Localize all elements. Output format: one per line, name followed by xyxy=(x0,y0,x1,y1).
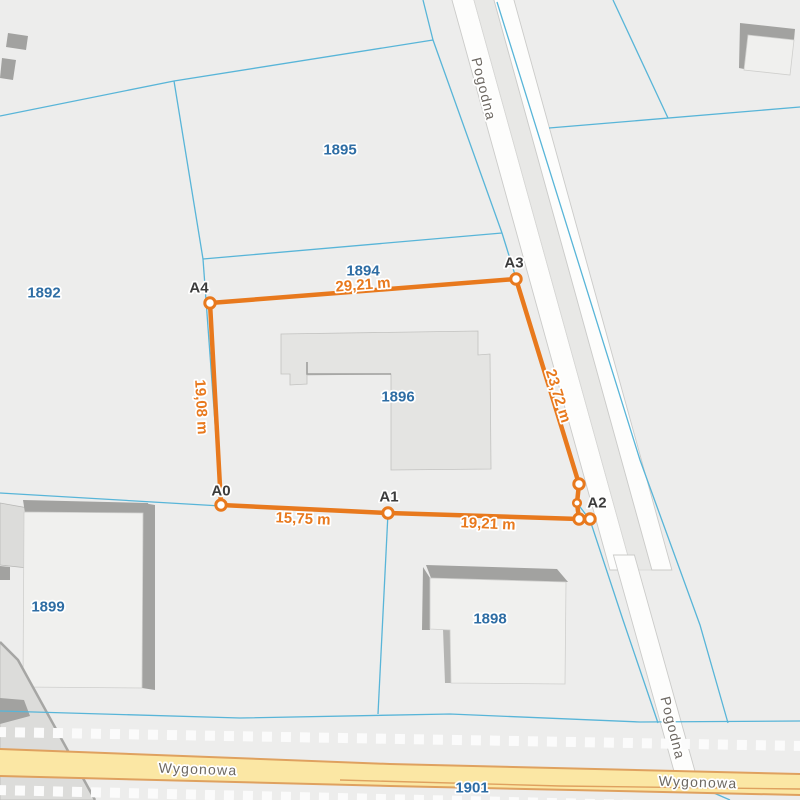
vertex-label-a2: A2 xyxy=(587,495,606,512)
distance-label-a3-a4: 29,21 m xyxy=(335,274,391,295)
building-1898-body xyxy=(430,578,566,684)
boundary-1898-west xyxy=(378,513,388,714)
distance-label-a1-a2: 19,21 m xyxy=(460,514,516,533)
vertex-corner-2[interactable] xyxy=(585,514,595,524)
street-label-wygonowa-right: Wygonowa xyxy=(658,773,737,792)
parcel-label-1892: 1892 xyxy=(27,285,60,302)
measure-edge-a4-a0 xyxy=(210,303,221,505)
building-1899-annex-shadow xyxy=(0,566,10,580)
vertex-a1[interactable] xyxy=(383,508,393,518)
parcel-label-1899: 1899 xyxy=(31,599,64,616)
boundary-north xyxy=(0,40,433,116)
parcel-label-1896: 1896 xyxy=(381,389,414,406)
map-viewport: Pogodna Pogodna Wygonowa Wygonowa 1892 1… xyxy=(0,0,800,800)
boundary-north-stub xyxy=(423,0,433,40)
boundary-1894-north xyxy=(203,233,502,259)
vertex-a0[interactable] xyxy=(216,500,226,510)
parcel-label-1895: 1895 xyxy=(323,142,356,159)
building-1899-shadow-right xyxy=(142,503,155,690)
boundary-topright-horizontal xyxy=(549,107,800,128)
road-pogodna-median xyxy=(472,0,652,570)
distance-label-a0-a1: 15,75 m xyxy=(275,509,331,528)
vertex-mid-east[interactable] xyxy=(574,479,584,489)
vertex-a4[interactable] xyxy=(205,298,215,308)
buildings xyxy=(0,23,795,800)
vertex-label-a3: A3 xyxy=(504,255,523,272)
parcel-label-1901: 1901 xyxy=(455,780,488,797)
building-small-topleft-2 xyxy=(0,58,16,80)
vertex-label-a4: A4 xyxy=(189,280,209,297)
street-label-wygonowa-left: Wygonowa xyxy=(158,760,237,779)
parcel-label-1898: 1898 xyxy=(473,611,506,628)
map-canvas[interactable]: Pogodna Pogodna Wygonowa Wygonowa 1892 1… xyxy=(0,0,800,800)
vertex-corner-1[interactable] xyxy=(574,514,584,524)
vertex-label-a0: A0 xyxy=(211,483,230,500)
building-small-topleft-1 xyxy=(6,33,28,50)
distance-label-a4-a0: 19,08 m xyxy=(191,379,211,435)
boundary-1892-east-upper xyxy=(174,81,203,259)
vertex-a2[interactable] xyxy=(573,499,581,507)
vertex-a3[interactable] xyxy=(511,274,521,284)
vertex-label-a1: A1 xyxy=(379,489,398,506)
building-1898-shadow-left xyxy=(422,567,430,630)
boundary-topright-steep xyxy=(613,0,668,118)
building-topright-body xyxy=(744,35,794,75)
